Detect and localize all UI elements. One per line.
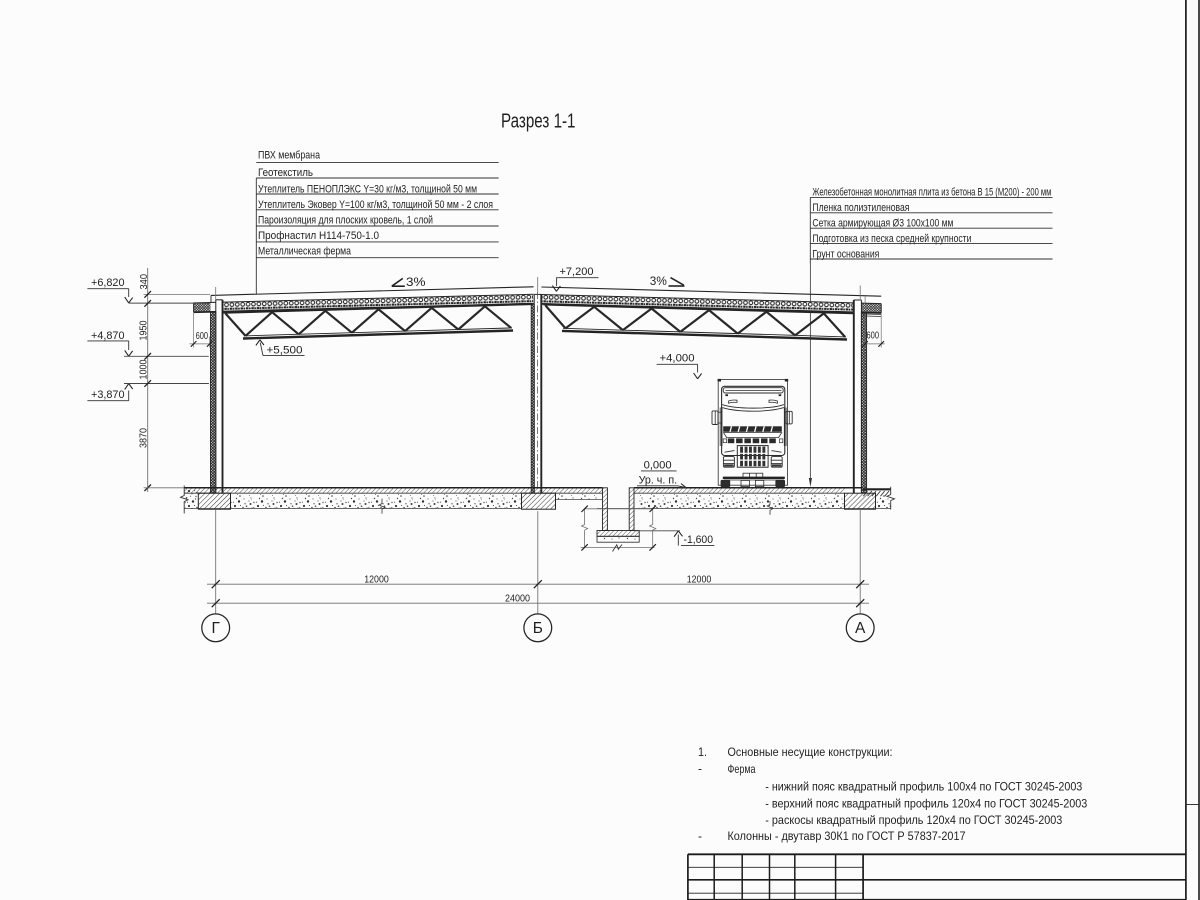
svg-text:12000: 12000 — [364, 574, 389, 585]
svg-text:Разрез 1-1: Разрез 1-1 — [501, 110, 576, 132]
svg-text:+5,500: +5,500 — [267, 345, 303, 357]
svg-text:0,000: 0,000 — [644, 459, 672, 471]
svg-text:- раскосы квадратный профиль 1: - раскосы квадратный профиль 120х4 по ГО… — [765, 813, 1062, 827]
svg-text:+6,820: +6,820 — [91, 277, 125, 289]
svg-text:3%: 3% — [406, 277, 426, 289]
svg-text:Колонны - двутавр 30К1 по ГОСТ: Колонны - двутавр 30К1 по ГОСТ Р 57837-2… — [728, 829, 966, 843]
svg-text:3870: 3870 — [138, 427, 149, 448]
svg-text:1950: 1950 — [138, 320, 149, 341]
svg-text:3%: 3% — [650, 276, 667, 288]
svg-text:-: - — [698, 762, 702, 776]
svg-text:340: 340 — [139, 273, 150, 289]
svg-text:ПВХ мембрана: ПВХ мембрана — [258, 149, 321, 161]
svg-text:+4,000: +4,000 — [660, 352, 695, 364]
svg-text:+4,870: +4,870 — [91, 330, 125, 342]
svg-text:Пароизоляция для плоских крове: Пароизоляция для плоских кровель, 1 слой — [258, 214, 433, 226]
svg-text:Утеплитель ПЕНОПЛЭКС Y=30 кг/м: Утеплитель ПЕНОПЛЭКС Y=30 кг/м3, толщино… — [258, 183, 477, 195]
svg-text:24000: 24000 — [505, 593, 530, 604]
svg-text:Профнастил Н114-750-1.0: Профнастил Н114-750-1.0 — [258, 230, 379, 242]
svg-text:1.: 1. — [698, 745, 707, 759]
svg-text:12000: 12000 — [687, 574, 712, 585]
svg-text:+7,200: +7,200 — [560, 266, 594, 278]
svg-text:Пленка полиэтиленовая: Пленка полиэтиленовая — [812, 202, 909, 214]
svg-text:-: - — [698, 829, 702, 843]
svg-text:Г: Г — [211, 620, 220, 637]
svg-text:- верхний пояс квадратный проф: - верхний пояс квадратный профиль 120х4 … — [765, 796, 1087, 810]
svg-text:1000: 1000 — [138, 359, 149, 380]
svg-text:Металлическая ферма: Металлическая ферма — [258, 246, 352, 258]
svg-text:- нижний пояс квадратный профи: - нижний пояс квадратный профиль 100х4 п… — [765, 780, 1082, 794]
svg-text:Ур. ч. п.: Ур. ч. п. — [639, 475, 678, 487]
svg-text:Б: Б — [533, 620, 543, 637]
svg-text:Ферма: Ферма — [728, 762, 756, 776]
svg-text:Основные несущие конструкции:: Основные несущие конструкции: — [728, 745, 893, 759]
svg-text:А: А — [855, 620, 866, 637]
svg-text:Утеплитель Эковер Y=100 кг/м3,: Утеплитель Эковер Y=100 кг/м3, толщиной … — [258, 199, 493, 211]
svg-text:Геотекстиль: Геотекстиль — [258, 167, 313, 179]
svg-text:-1,600: -1,600 — [684, 534, 714, 546]
svg-text:600: 600 — [196, 331, 209, 342]
svg-text:Сетка армирующая Ø3 100х100 мм: Сетка армирующая Ø3 100х100 мм — [812, 217, 953, 229]
svg-text:+3,870: +3,870 — [91, 389, 125, 401]
svg-text:600: 600 — [867, 331, 880, 342]
svg-text:Подготовка из песка средней кр: Подготовка из песка средней крупности — [812, 233, 971, 245]
svg-text:Железобетонная монолитная плит: Железобетонная монолитная плита из бетон… — [812, 186, 1051, 198]
